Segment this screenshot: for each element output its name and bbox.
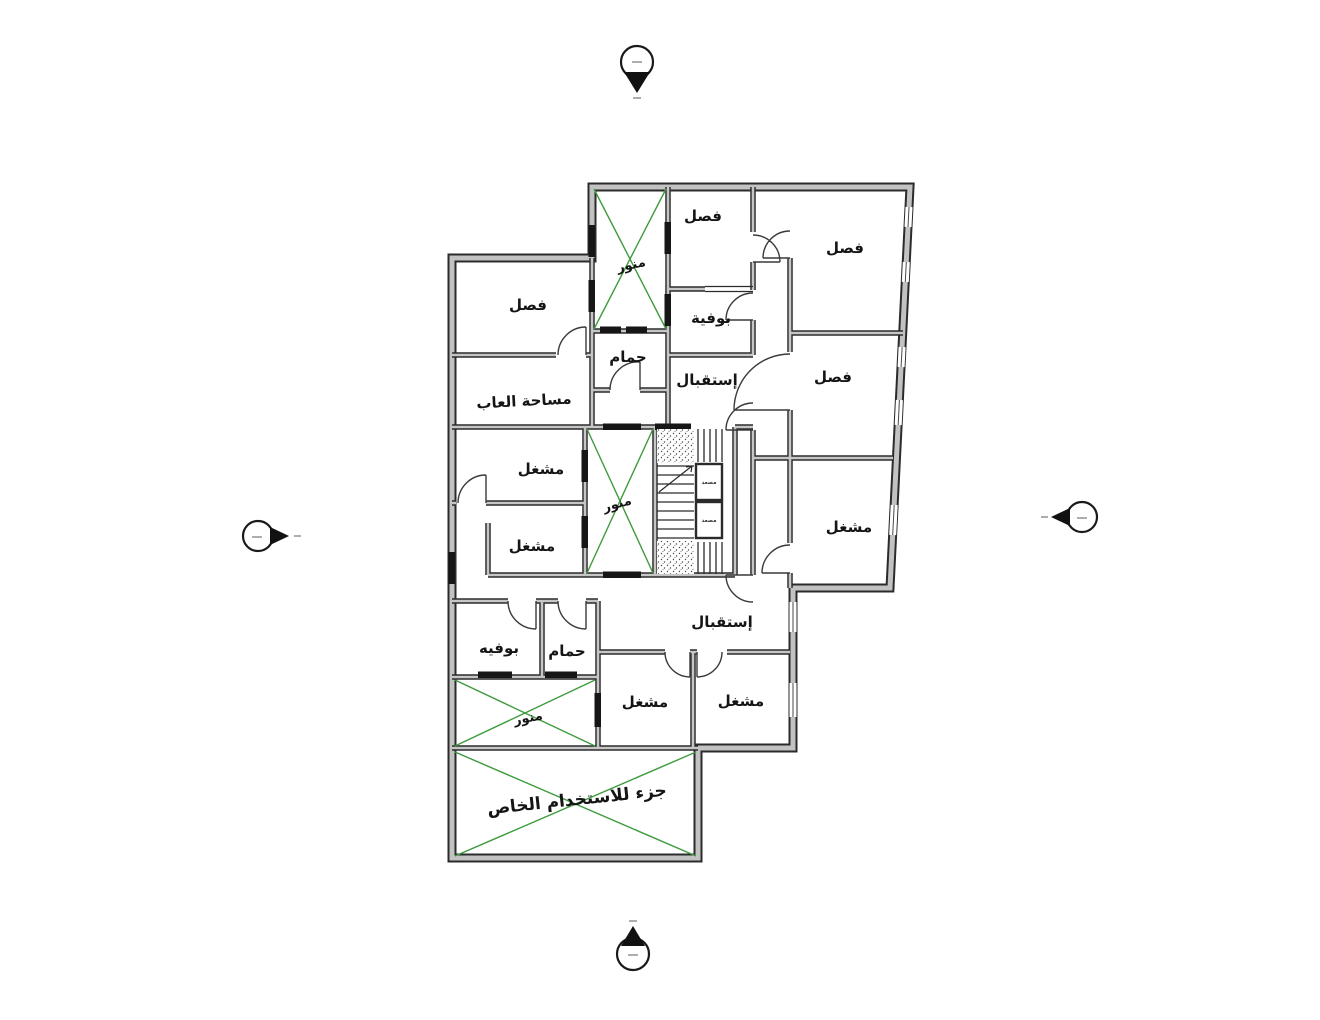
stair-landing-bottom xyxy=(657,541,694,574)
room-label-workshop-mid-left-lower: مشغل xyxy=(509,537,555,555)
floor-plan-canvas: مصعد مصعد فصل منور فصل فصل بوفية حمام إس… xyxy=(0,0,1320,1020)
room-label-workshop-bottom-right: مشغل xyxy=(718,692,764,710)
marker-circle xyxy=(243,521,273,551)
buffet-hatch-counter xyxy=(705,287,753,292)
marker-arrow-left-icon xyxy=(1051,508,1070,526)
marker-arrow-up-icon xyxy=(621,926,645,946)
elevator-shaft-2: مصعد xyxy=(696,502,722,538)
section-marker-top xyxy=(621,46,653,98)
stair-treads xyxy=(657,466,694,538)
stair-landing-top xyxy=(657,429,694,463)
room-label-workshop-right: مشغل xyxy=(826,518,872,536)
window-openings xyxy=(793,207,909,717)
room-label-classroom-right: فصل xyxy=(814,368,852,386)
stair-core: مصعد مصعد xyxy=(657,429,722,574)
marker-arrow-down-icon xyxy=(624,72,650,93)
room-label-reception-lower: إستقبال xyxy=(691,613,753,631)
room-label-bathroom-lower: حمام xyxy=(548,642,586,660)
section-marker-bottom xyxy=(617,921,649,970)
room-label-play-area: مساحة العاب xyxy=(476,390,572,413)
room-labels: فصل منور فصل فصل بوفية حمام إستقبال فصل … xyxy=(476,207,872,819)
marker-circle xyxy=(1067,502,1097,532)
section-marker-right xyxy=(1041,502,1097,532)
room-label-light-well-bottom: منور xyxy=(512,709,544,729)
room-label-buffet-upper: بوفية xyxy=(691,309,731,327)
section-marker-left xyxy=(243,521,301,551)
room-label-bathroom-upper: حمام xyxy=(609,348,647,366)
room-label-buffet-lower: بوفيه xyxy=(479,639,519,657)
room-label-classroom-top-right: فصل xyxy=(826,239,864,257)
elevator-label: مصعد xyxy=(701,480,716,486)
room-label-workshop-bottom-left: مشغل xyxy=(622,693,668,711)
room-label-classroom-top-left: فصل xyxy=(509,296,547,314)
elevator-label: مصعد xyxy=(701,518,716,524)
light-well-marks xyxy=(455,189,696,856)
room-label-private-use-area: جزء للاستخدام الخاص xyxy=(486,781,667,820)
door-arcs xyxy=(458,231,790,677)
room-label-workshop-mid-left-upper: مشغل xyxy=(518,460,564,478)
elevator-shaft-1: مصعد xyxy=(696,464,722,500)
room-label-reception-upper: إستقبال xyxy=(676,371,738,389)
floor-plan-page: مصعد مصعد فصل منور فصل فصل بوفية حمام إس… xyxy=(0,0,1320,1020)
room-label-light-well-top: منور xyxy=(615,255,647,276)
marker-arrow-right-icon xyxy=(270,527,289,545)
room-label-classroom-top-middle: فصل xyxy=(684,207,722,225)
stair-direction-line xyxy=(659,466,692,492)
room-label-light-well-middle: منور xyxy=(600,493,633,515)
